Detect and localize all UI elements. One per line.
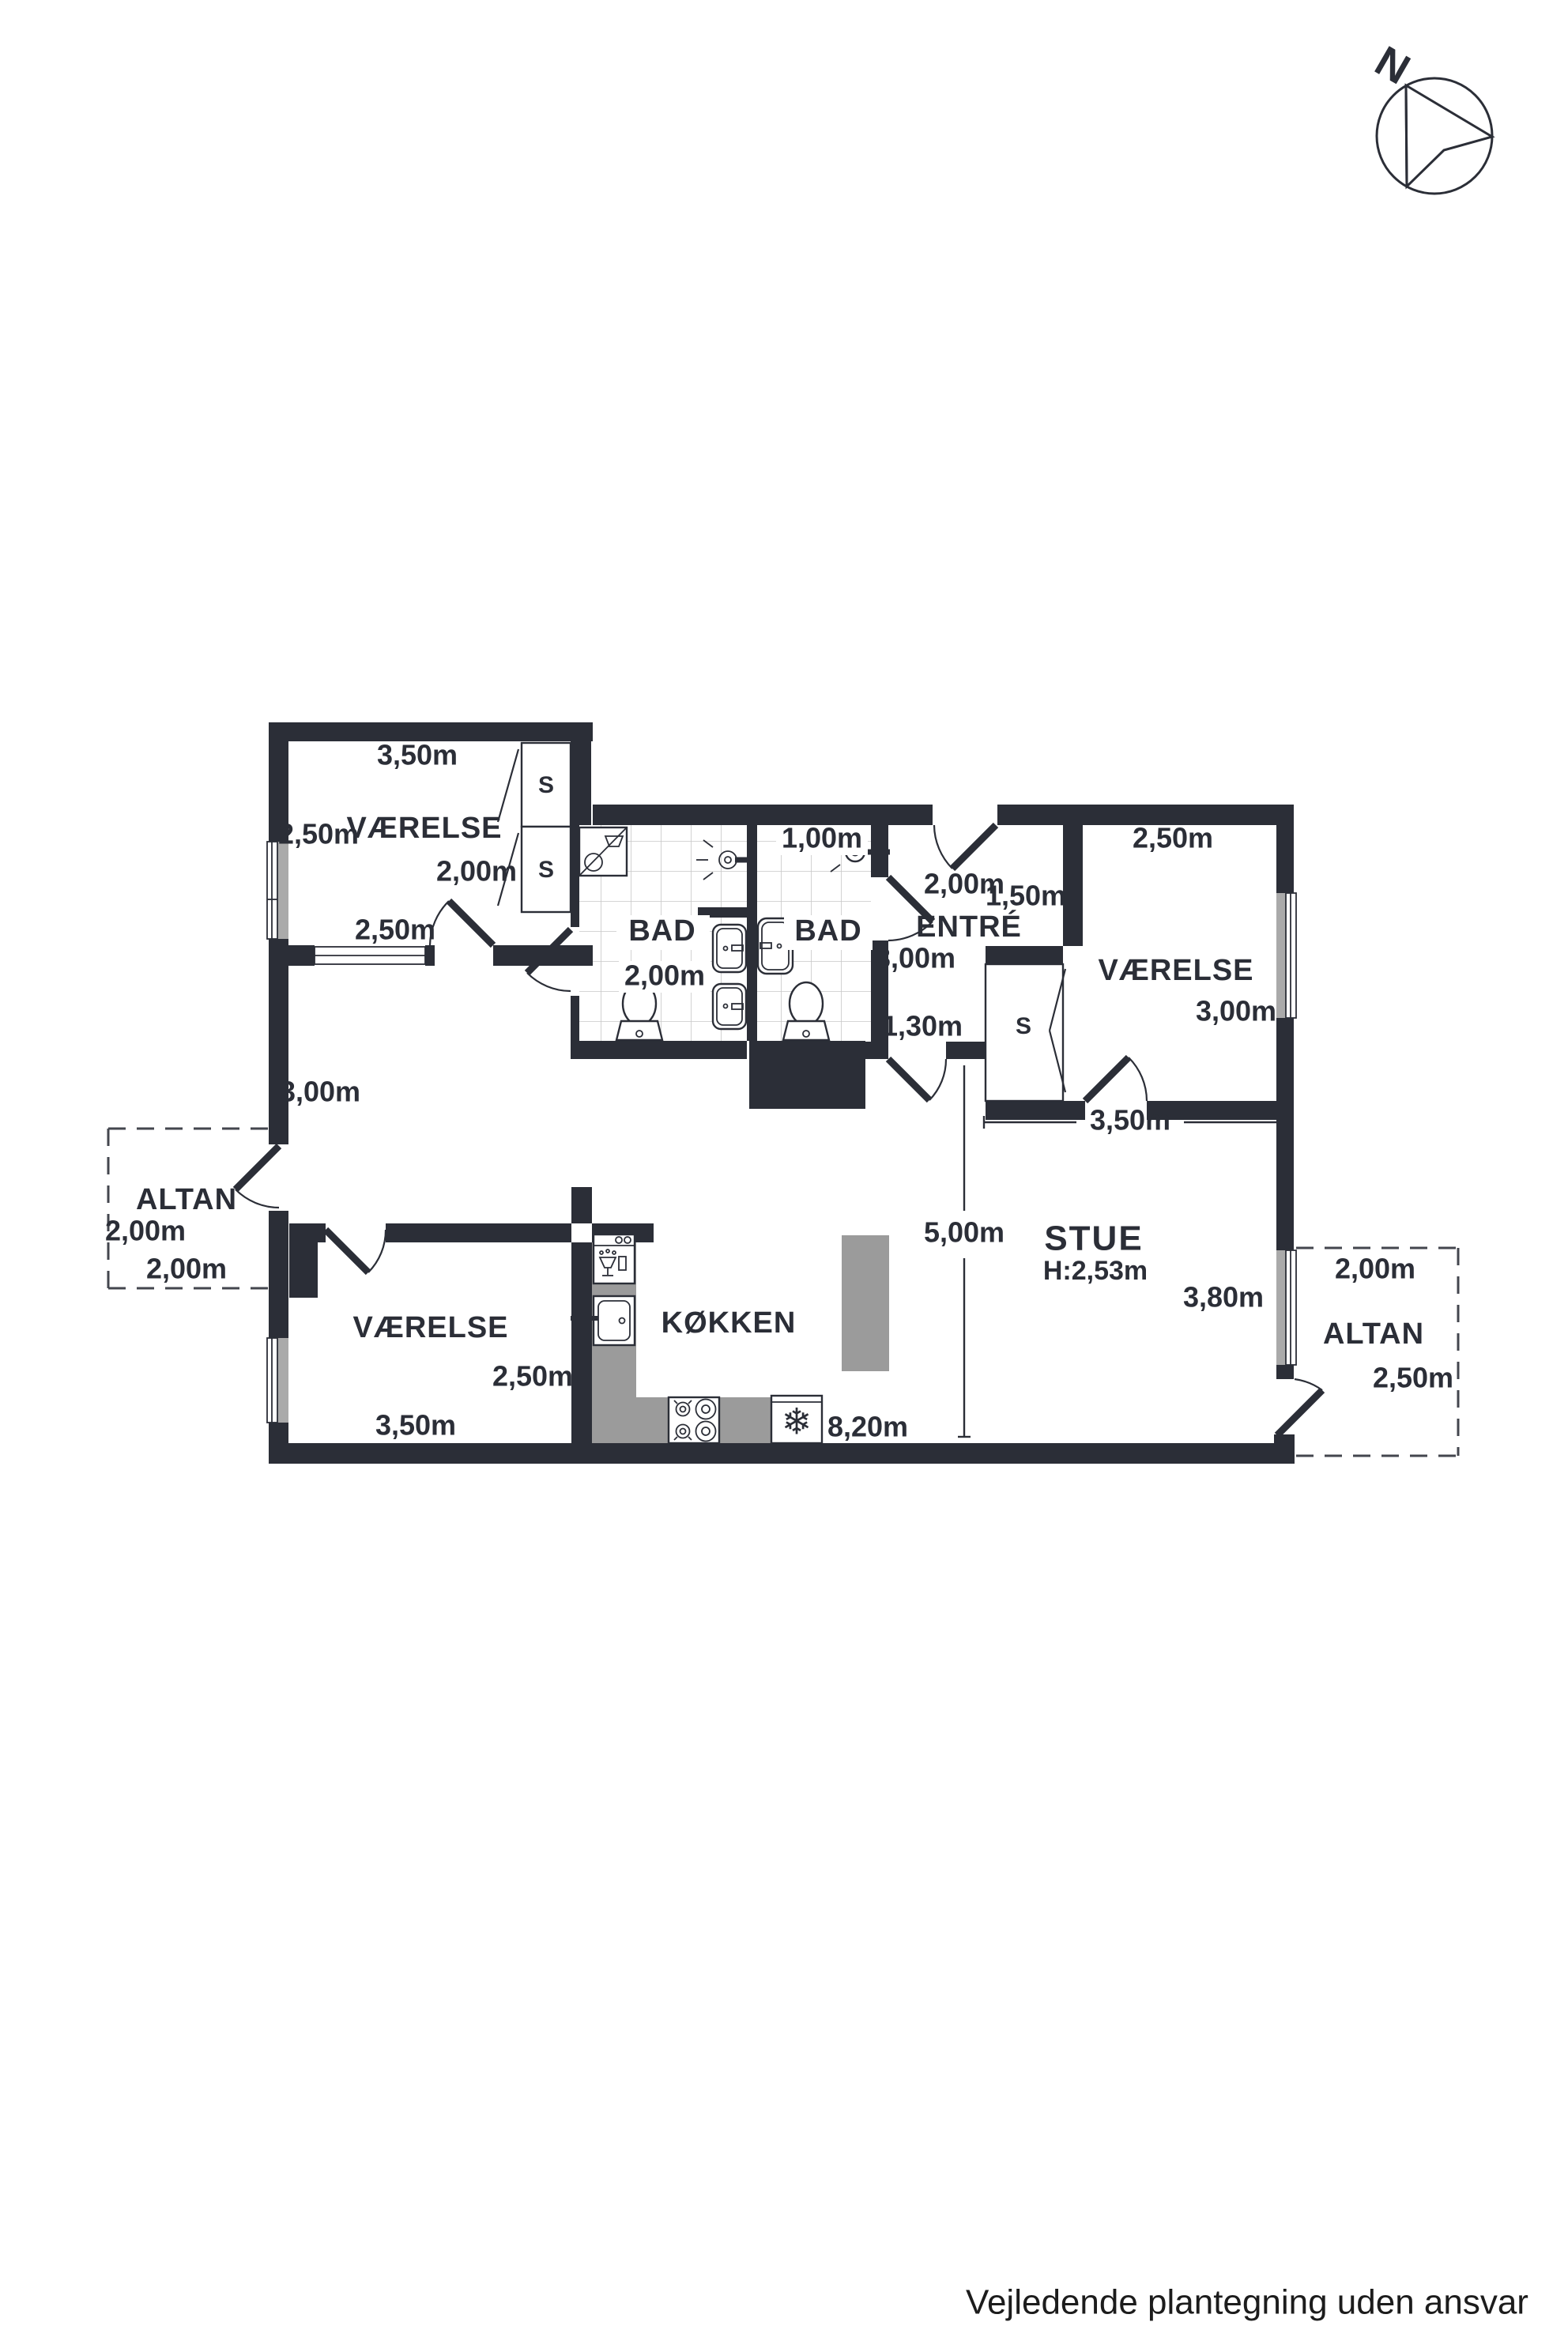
- floor-plan-page: ❄ 3,50m 2,50m VÆRELSE 2,00m 2,50m S S BA…: [0, 0, 1568, 2352]
- room-label-vaerelse-nw: VÆRELSE: [346, 812, 502, 845]
- dim-vaerelse-nw-closet: 2,00m: [436, 855, 517, 888]
- dim-bad-west-width: 2,00m: [624, 959, 705, 992]
- stove-icon: [669, 1397, 719, 1443]
- sink-icon: [713, 925, 746, 972]
- dim-vaerelse-sw-depth: 2,50m: [492, 1360, 573, 1393]
- dim-bad-east-width: 1,00m: [782, 822, 862, 854]
- dim-stue-ceiling: H:2,53m: [1043, 1256, 1148, 1286]
- room-label-koekken: KØKKEN: [661, 1306, 797, 1340]
- room-label-stue: STUE: [1044, 1219, 1143, 1258]
- window-stue-right: [1276, 1250, 1296, 1365]
- snowflake-glyph: ❄: [782, 1400, 812, 1443]
- dim-altan-east-width: 2,00m: [1335, 1253, 1415, 1285]
- dim-stue-length: 5,00m: [924, 1216, 1004, 1249]
- dim-entre-width: 1,50m: [986, 880, 1066, 912]
- dim-vaerelse-nw-width: 3,50m: [377, 739, 458, 771]
- dim-vaerelse-ne-depth: 3,00m: [1196, 995, 1276, 1027]
- footer-disclaimer: Vejledende plantegning uden ansvar: [966, 2283, 1528, 2322]
- sink-icon: [713, 984, 746, 1029]
- room-label-vaerelse-sw: VÆRELSE: [352, 1311, 508, 1344]
- dim-altan-east-depth: 2,50m: [1373, 1362, 1453, 1394]
- dim-vaerelse-sw-width: 3,50m: [375, 1409, 456, 1442]
- room-label-bad-west: BAD: [628, 914, 695, 948]
- dim-altan-west-depth: 2,00m: [105, 1215, 186, 1247]
- dim-entre-passage: 1,30m: [882, 1010, 963, 1042]
- dim-entre-depth: 3,00m: [875, 942, 955, 974]
- kitchen-island: [842, 1235, 889, 1371]
- room-label-altan-west: ALTAN: [136, 1183, 237, 1216]
- room-label-vaerelse-ne: VÆRELSE: [1098, 954, 1253, 987]
- freezer-icon: ❄: [771, 1396, 822, 1443]
- window-vaerelse-sw-left: [267, 1338, 288, 1423]
- room-label-altan-east: ALTAN: [1323, 1317, 1424, 1351]
- dishwasher-icon: [594, 1234, 635, 1283]
- dim-vaerelse-nw-window: 2,50m: [355, 914, 435, 946]
- dim-koekken-length: 8,20m: [827, 1411, 908, 1443]
- window-vaerelse-ne-right: [1276, 893, 1296, 1018]
- washing-machine-icon: [579, 827, 627, 876]
- window-vaerelse-nw-left: [267, 842, 288, 939]
- dim-vaerelse-ne-total: 3,50m: [1090, 1104, 1170, 1136]
- dim-vaerelse-ne-width: 2,50m: [1133, 822, 1213, 854]
- dim-altan-west-width: 2,00m: [146, 1253, 227, 1285]
- room-label-entre: ENTRÉ: [916, 909, 1022, 944]
- closet-label: S: [1016, 1013, 1031, 1039]
- dim-hall-wall: 3,00m: [280, 1076, 360, 1108]
- dim-stue-window: 3,80m: [1183, 1281, 1264, 1314]
- closet-label: S: [538, 857, 554, 883]
- window-vaerelse-nw-bottom: [315, 947, 425, 964]
- page-background: [0, 0, 1568, 2352]
- room-label-bad-east: BAD: [794, 914, 861, 948]
- closet-label: S: [538, 772, 554, 798]
